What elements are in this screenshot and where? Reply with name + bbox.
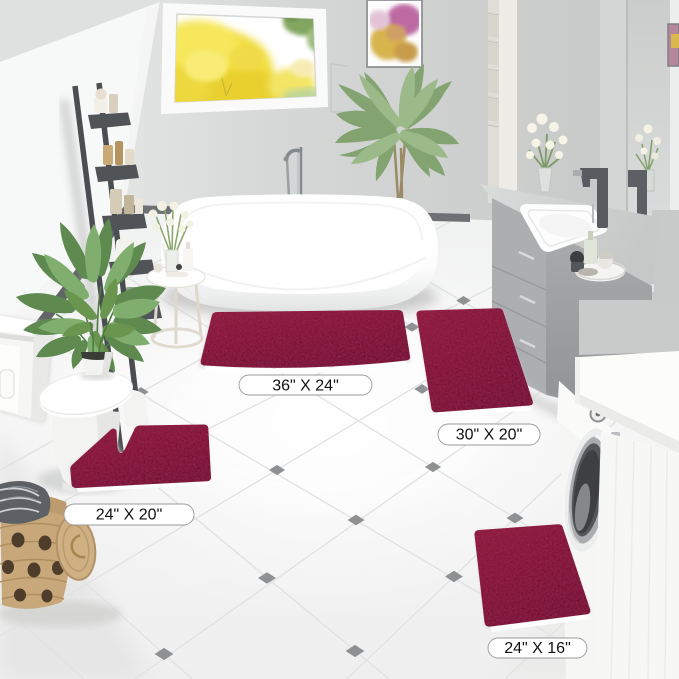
- svg-text:30" X 20": 30" X 20": [456, 427, 523, 444]
- svg-text:24" X 16": 24" X 16": [504, 640, 571, 657]
- svg-text:24" X 20": 24" X 20": [96, 507, 163, 524]
- svg-text:36" X 24": 36" X 24": [272, 378, 339, 395]
